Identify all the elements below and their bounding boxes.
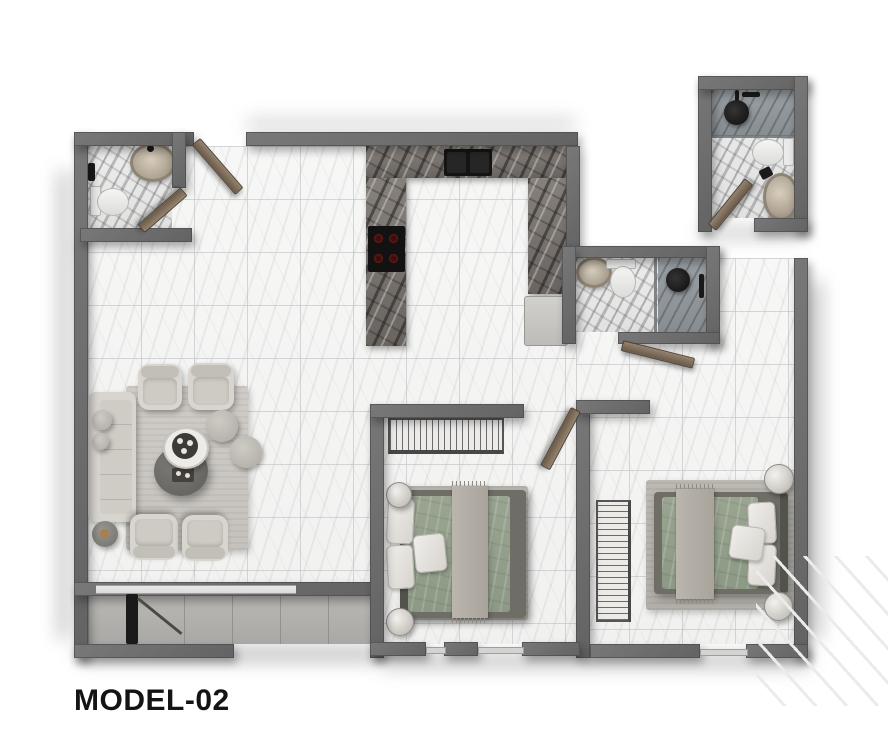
page-title: MODEL-02 <box>74 684 230 718</box>
pouf <box>230 436 262 468</box>
cup-icon <box>181 448 187 454</box>
window-sill <box>426 647 446 654</box>
wall <box>370 404 524 418</box>
wall <box>74 644 234 658</box>
wall <box>370 642 426 656</box>
sofa-cushion <box>92 433 109 450</box>
shower-glass <box>654 258 657 332</box>
shower-head-icon <box>724 100 749 125</box>
shower-control-icon <box>742 92 760 97</box>
shower-control-icon <box>699 274 704 298</box>
armchair <box>130 514 178 560</box>
kitchen-sink-icon <box>444 149 492 176</box>
wall <box>590 644 700 658</box>
balcony-door-frame <box>126 594 138 644</box>
cooktop-icon <box>368 226 405 272</box>
wall <box>370 404 384 658</box>
wall <box>794 76 808 232</box>
shower-head-icon <box>666 268 690 292</box>
shadow <box>58 170 70 640</box>
shower-arm-icon <box>735 90 739 101</box>
window <box>96 585 296 594</box>
wall <box>562 246 720 258</box>
wall <box>576 400 590 658</box>
faucet-icon <box>147 145 154 152</box>
wall <box>246 132 578 146</box>
window-sill <box>700 649 748 656</box>
pouf <box>206 410 238 442</box>
wall <box>698 76 712 232</box>
wall <box>706 246 720 344</box>
accent-pillow <box>412 532 448 573</box>
tray-icon <box>172 433 198 459</box>
armchair <box>182 515 228 561</box>
shadow <box>246 120 576 128</box>
wardrobe <box>388 418 504 454</box>
wall-fixture-icon <box>88 163 95 181</box>
wall <box>562 246 576 344</box>
wall <box>80 228 192 242</box>
table-tray <box>172 468 194 482</box>
wall <box>698 76 808 90</box>
side-table <box>92 521 118 547</box>
wall <box>576 400 650 414</box>
bed-throw <box>676 489 714 599</box>
armchair <box>138 364 182 410</box>
cup-icon <box>176 471 181 476</box>
cup-icon <box>185 473 190 478</box>
wall <box>754 218 808 232</box>
nightstand <box>386 482 412 508</box>
nightstand <box>764 464 794 494</box>
wall <box>444 642 478 656</box>
pillow <box>386 544 415 589</box>
bed-throw <box>452 486 488 618</box>
wall <box>566 146 580 258</box>
floorplan-image: MODEL-02 <box>0 0 890 740</box>
shower-glass <box>712 135 794 138</box>
cup-icon <box>177 438 183 444</box>
armchair <box>188 363 234 410</box>
wall <box>74 132 88 658</box>
wardrobe <box>596 500 631 622</box>
sofa-cushion <box>92 410 112 430</box>
wall <box>172 132 186 188</box>
cup-icon <box>187 440 193 446</box>
window-sill <box>478 647 524 654</box>
watermark-lines <box>756 556 888 706</box>
wall <box>522 642 580 656</box>
nightstand <box>386 608 414 636</box>
kitchen-counter-right <box>528 178 566 294</box>
